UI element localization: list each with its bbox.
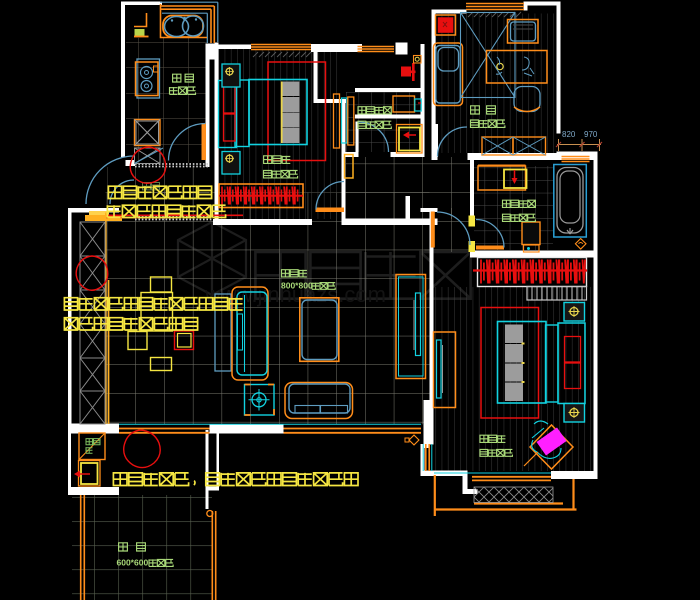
svg-text:970: 970 [584, 130, 598, 139]
svg-text:600*600: 600*600 [117, 558, 149, 568]
svg-text:820: 820 [562, 130, 576, 139]
svg-text:800*800: 800*800 [281, 281, 313, 291]
